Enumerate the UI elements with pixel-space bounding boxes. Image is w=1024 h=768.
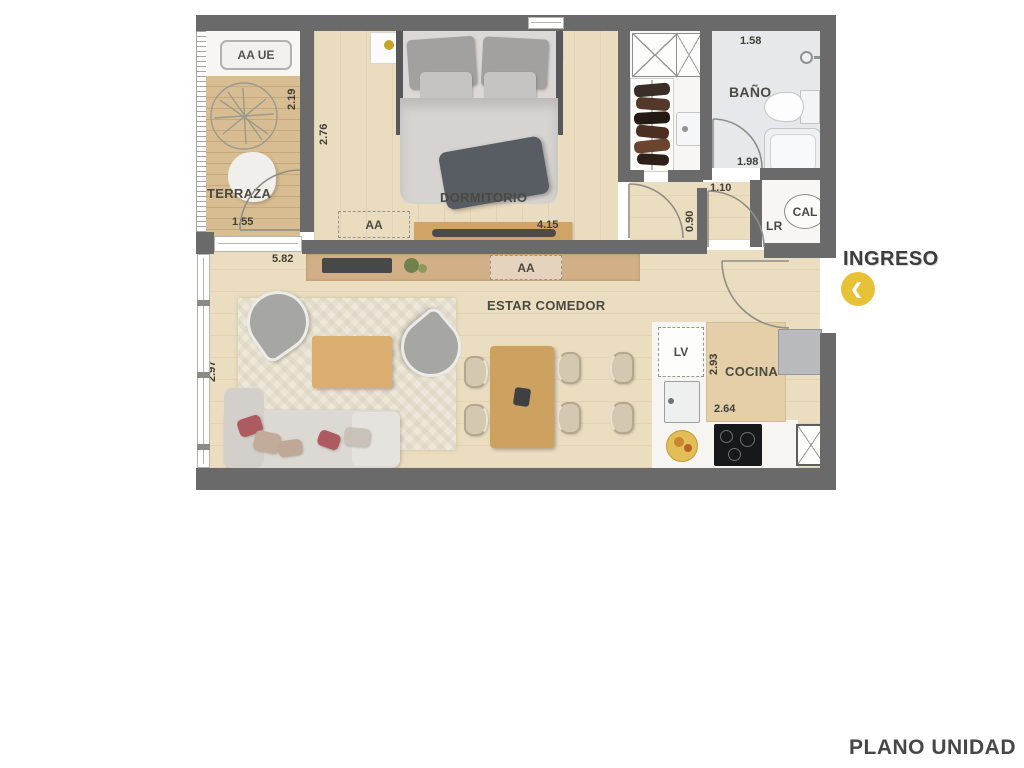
bathroom-door-arc (713, 119, 762, 168)
hall-door-arc (708, 191, 764, 247)
terrace-door-arc (240, 170, 300, 230)
entry-chevron-icon: ❮ (841, 272, 875, 306)
floor-plan-page: AA UE TERRAZA 1.55 2.19 DORMITORIO AA 4.… (0, 0, 1024, 768)
entry-label: INGRESO (843, 248, 939, 271)
page-title: PLANO UNIDAD (840, 736, 1016, 760)
bedroom-door-arc (629, 184, 683, 238)
entry-door-arc (722, 261, 789, 328)
terrace-plant-icon (211, 83, 277, 149)
plan-linework-layer (0, 0, 1024, 768)
chevron-left-glyph: ❮ (850, 280, 863, 298)
